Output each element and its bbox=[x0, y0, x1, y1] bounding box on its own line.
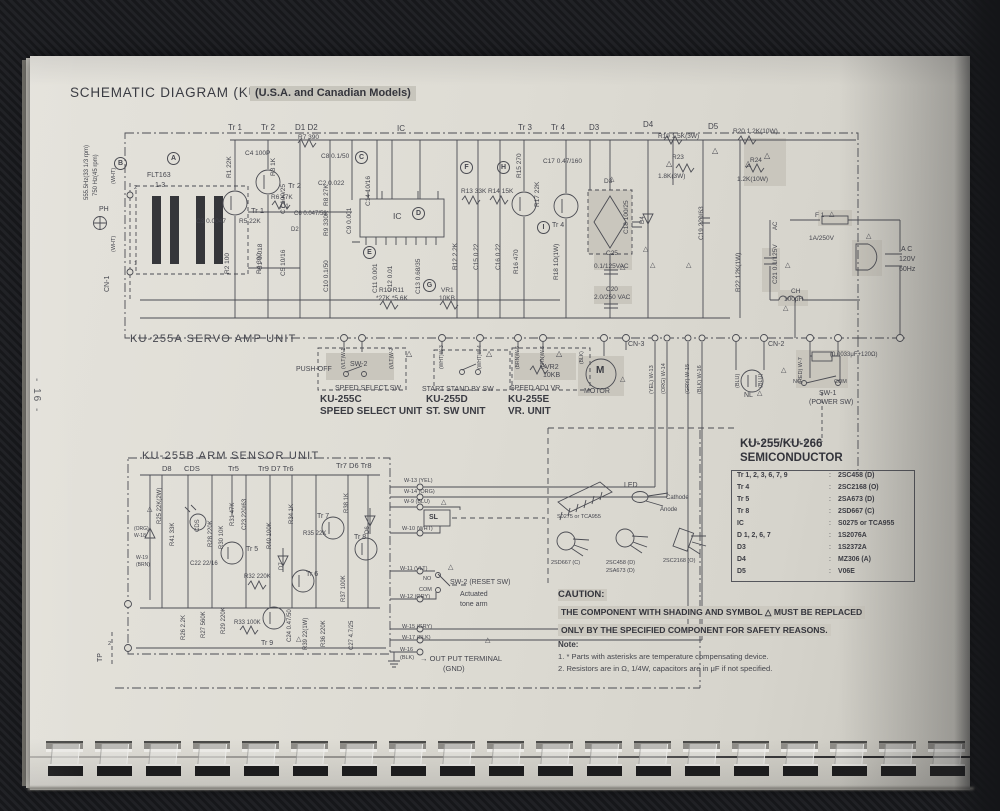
part-ref: D5 bbox=[737, 568, 746, 575]
part-ref: Tr 1, 2, 3, 6, 7, 9 bbox=[737, 472, 788, 479]
note-line1: 1. * Parts with asterisks are temperatur… bbox=[558, 652, 984, 661]
part-number: 2SC458 (D) bbox=[838, 472, 874, 479]
binding-slot-bottom bbox=[146, 764, 181, 776]
caution-heading: CAUTION: bbox=[558, 589, 607, 601]
colon: : bbox=[829, 484, 831, 491]
colon: : bbox=[829, 520, 831, 527]
part-ref: D3 bbox=[737, 544, 746, 551]
binding-slot-bottom bbox=[440, 764, 475, 776]
binding-slot-bottom bbox=[293, 764, 328, 776]
semiconductor-row: Tr 4:2SC2168 (O) bbox=[732, 483, 914, 495]
binding-slot-bottom bbox=[391, 764, 426, 776]
binding-slot-bottom bbox=[538, 764, 573, 776]
binding-slot-bottom bbox=[685, 764, 720, 776]
colon: : bbox=[829, 568, 831, 575]
colon: : bbox=[829, 508, 831, 515]
part-ref: D4 bbox=[737, 556, 746, 563]
part-ref: IC bbox=[737, 520, 744, 527]
semiconductor-row: D3:1S2372A bbox=[732, 543, 914, 555]
semiconductor-row: D5:V06E bbox=[732, 567, 914, 579]
part-ref: D 1, 2, 6, 7 bbox=[737, 532, 771, 539]
caution-block: CAUTION: THE COMPONENT WITH SHADING AND … bbox=[558, 584, 984, 673]
part-number: 1S2372A bbox=[838, 544, 867, 551]
semiconductor-title-line1: KU-255/KU-266 bbox=[740, 437, 843, 451]
binding-slot-bottom bbox=[97, 764, 132, 776]
semiconductor-row: Tr 5:2SA673 (D) bbox=[732, 495, 914, 507]
model-region-badge: (U.S.A. and Canadian Models) bbox=[250, 86, 416, 101]
part-ref: Tr 5 bbox=[737, 496, 749, 503]
binding-slot-bottom bbox=[734, 764, 769, 776]
part-number: 2SC2168 (O) bbox=[838, 484, 879, 491]
semiconductor-row: IC:S0275 or TCA955 bbox=[732, 519, 914, 531]
part-number: MZ306 (A) bbox=[838, 556, 871, 563]
semiconductor-title-line2: SEMICONDUCTOR bbox=[740, 451, 843, 465]
semiconductor-table-title: KU-255/KU-266 SEMICONDUCTOR bbox=[740, 437, 843, 466]
part-number: 1S2076A bbox=[838, 532, 867, 539]
semiconductor-row: Tr 1, 2, 3, 6, 7, 9:2SC458 (D) bbox=[732, 471, 914, 483]
binding-slot-bottom bbox=[832, 764, 867, 776]
colon: : bbox=[829, 472, 831, 479]
semiconductor-table: Tr 1, 2, 3, 6, 7, 9:2SC458 (D)Tr 4:2SC21… bbox=[731, 470, 915, 582]
schematic-drawing bbox=[0, 0, 1000, 811]
binding-slot-bottom bbox=[930, 764, 965, 776]
part-number: V06E bbox=[838, 568, 855, 575]
page-bottom-edge bbox=[28, 787, 974, 790]
note-heading: Note: bbox=[558, 640, 984, 649]
binding-slot-bottom bbox=[244, 764, 279, 776]
binding-slot-bottom bbox=[195, 764, 230, 776]
part-number: 2SD667 (C) bbox=[838, 508, 874, 515]
part-ref: Tr 4 bbox=[737, 484, 749, 491]
caution-line1: THE COMPONENT WITH SHADING AND SYMBOL △ … bbox=[558, 606, 865, 619]
part-number: S0275 or TCA955 bbox=[838, 520, 894, 527]
semiconductor-row: Tr 8:2SD667 (C) bbox=[732, 507, 914, 519]
binding-slot-bottom bbox=[587, 764, 622, 776]
semiconductor-row: D4:MZ306 (A) bbox=[732, 555, 914, 567]
caution-line2: ONLY BY THE SPECIFIED COMPONENT FOR SAFE… bbox=[558, 624, 831, 636]
note-line2: 2. Resistors are in Ω, 1/4W, capacitors … bbox=[558, 664, 984, 673]
binding-slot-bottom bbox=[342, 764, 377, 776]
binding-slot-bottom bbox=[881, 764, 916, 776]
colon: : bbox=[829, 556, 831, 563]
colon: : bbox=[829, 544, 831, 551]
part-ref: Tr 8 bbox=[737, 508, 749, 515]
binding-slot-bottom bbox=[636, 764, 671, 776]
page-number: - 16 - bbox=[31, 378, 42, 413]
colon: : bbox=[829, 496, 831, 503]
part-number: 2SA673 (D) bbox=[838, 496, 874, 503]
colon: : bbox=[829, 532, 831, 539]
semiconductor-row: D 1, 2, 6, 7:1S2076A bbox=[732, 531, 914, 543]
binding-slot-bottom bbox=[489, 764, 524, 776]
photo-of-service-manual: { "header": { "title": "SCHEMATIC DIAGRA… bbox=[0, 0, 1000, 811]
binding-slot-bottom bbox=[48, 764, 83, 776]
binding-slot-bottom bbox=[783, 764, 818, 776]
